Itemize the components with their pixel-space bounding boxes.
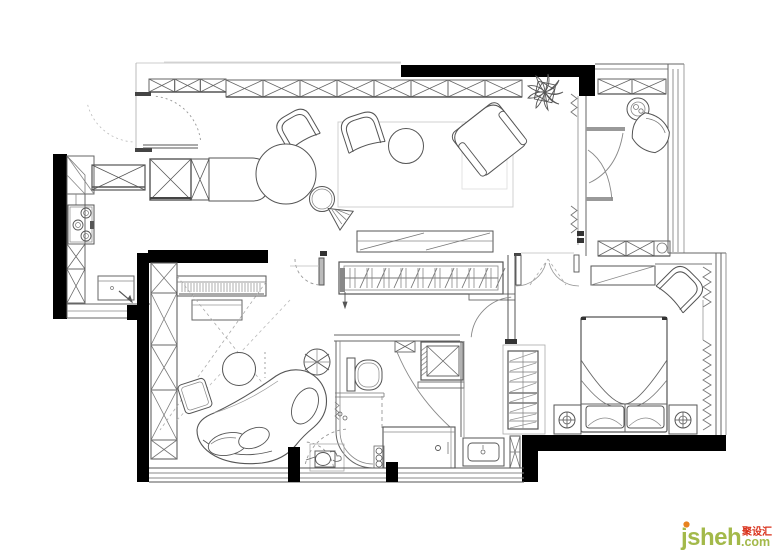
svg-text:聚设汇: 聚设汇: [741, 525, 772, 538]
svg-text:jsheh: jsheh: [680, 524, 741, 551]
